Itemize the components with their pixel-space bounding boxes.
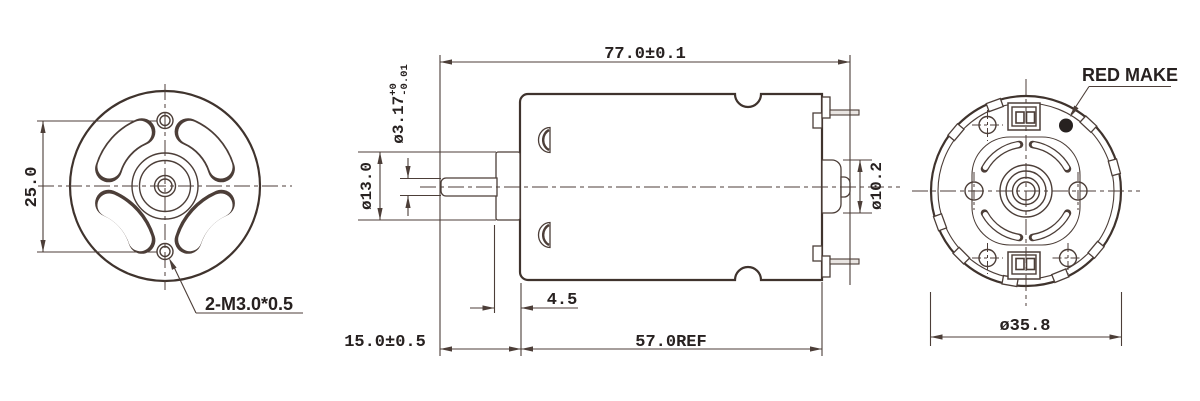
back-view: RED MAKE ø35.8 — [912, 65, 1178, 346]
back-terminal-top — [1008, 103, 1040, 130]
dim-15-label: 15.0±0.5 — [344, 333, 426, 352]
red-make-label: RED MAKE — [1082, 65, 1178, 85]
red-mark-dot — [1059, 119, 1073, 133]
dim-4-5-label: 4.5 — [547, 291, 578, 310]
back-terminal-bottom — [1008, 252, 1040, 279]
terminal-pin-top — [830, 110, 859, 115]
red-mark-callout: RED MAKE — [1070, 65, 1178, 117]
dim-shaft-length: 15.0±0.5 — [344, 333, 521, 352]
dim-shaft-diameter: ø3.17+0-0.01 — [388, 64, 411, 216]
dim-shaft-diameter-label: ø3.17+0-0.01 — [388, 64, 411, 144]
dim-77-label: 77.0±0.1 — [604, 45, 686, 64]
thread-callout-label: 2-M3.0*0.5 — [205, 294, 293, 314]
dim-13-label: ø13.0 — [358, 162, 376, 210]
drawing-canvas: 25.0 2-M3.0*0.5 — [0, 0, 1200, 401]
dim-35-8-label: ø35.8 — [999, 317, 1050, 336]
dim-outer-diameter: ø35.8 — [931, 292, 1122, 346]
terminal-pin-bottom — [830, 259, 859, 264]
dim-collar-width: 4.5 — [470, 291, 578, 311]
front-collar — [496, 152, 520, 220]
dim-25-label: 25.0 — [23, 167, 42, 208]
dim-10-2-label: ø10.2 — [868, 162, 886, 210]
dim-collar-diameter: ø13.0 — [358, 152, 383, 220]
dim-57-label: 57.0REF — [635, 333, 706, 352]
dim-body-length: 57.0REF — [521, 333, 822, 352]
front-view: 25.0 2-M3.0*0.5 — [23, 84, 303, 314]
motor-engineering-drawing: 25.0 2-M3.0*0.5 — [0, 0, 1200, 401]
dim-overall-length: 77.0±0.1 — [440, 45, 850, 65]
side-view: 77.0±0.1 ø3.17+0-0.01 ø13.0 4.5 — [344, 45, 900, 356]
